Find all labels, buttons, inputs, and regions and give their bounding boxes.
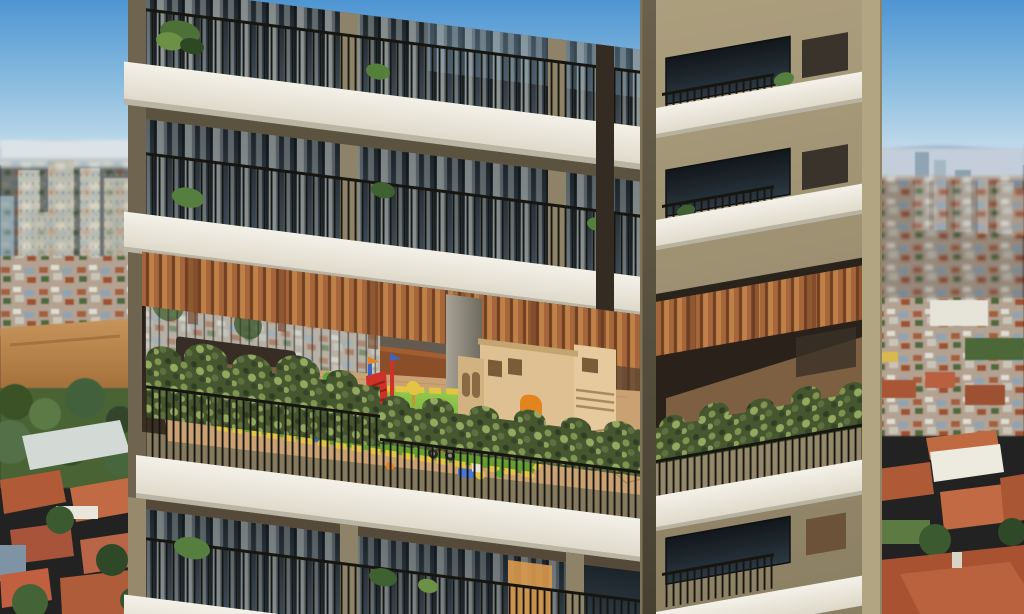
playhouse-window <box>488 359 502 377</box>
foreground-houses-right <box>862 430 1024 614</box>
dark-panel <box>802 144 848 190</box>
core-shaft <box>596 44 614 311</box>
render-canvas: Aerial architectural rendering of a mode… <box>0 0 1024 614</box>
right-edge-pier <box>862 0 882 614</box>
dark-panel <box>802 32 848 78</box>
playhouse-window <box>582 357 598 373</box>
city-right <box>860 146 1024 614</box>
terrace-right-side <box>656 254 882 531</box>
corner-highlight <box>640 0 643 614</box>
tower-front-facade <box>124 0 668 614</box>
architectural-rendering: Aerial architectural rendering of a mode… <box>0 0 1024 614</box>
tower-corner-pier <box>640 0 658 614</box>
playhouse-window <box>508 358 522 376</box>
tower-right-facade <box>656 0 882 614</box>
right-edge-line <box>880 0 882 614</box>
warm-window <box>806 512 846 555</box>
dense-city-band-right <box>860 176 1024 304</box>
